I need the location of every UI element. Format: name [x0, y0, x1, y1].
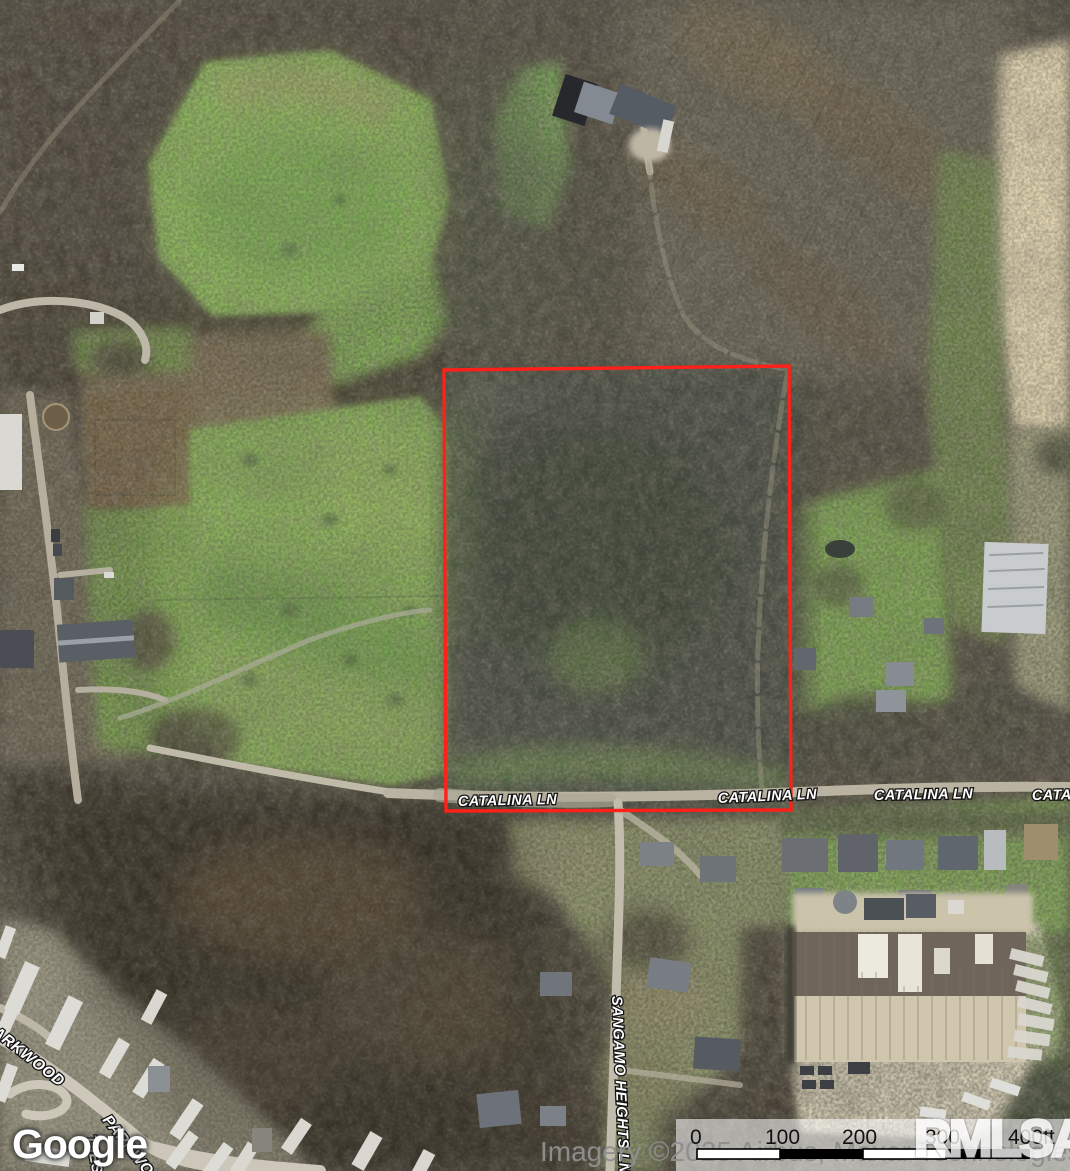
svg-text:Google: Google — [12, 1121, 147, 1167]
svg-text:RMLSA: RMLSA — [914, 1110, 1070, 1168]
svg-text:CATALINA LN: CATALINA LN — [874, 786, 974, 804]
svg-text:CATALINA: CATALINA — [1032, 787, 1070, 804]
svg-text:200: 200 — [842, 1126, 877, 1149]
svg-text:0: 0 — [690, 1126, 702, 1149]
svg-text:CATALINA LN: CATALINA LN — [458, 792, 558, 810]
svg-text:100: 100 — [765, 1126, 800, 1149]
